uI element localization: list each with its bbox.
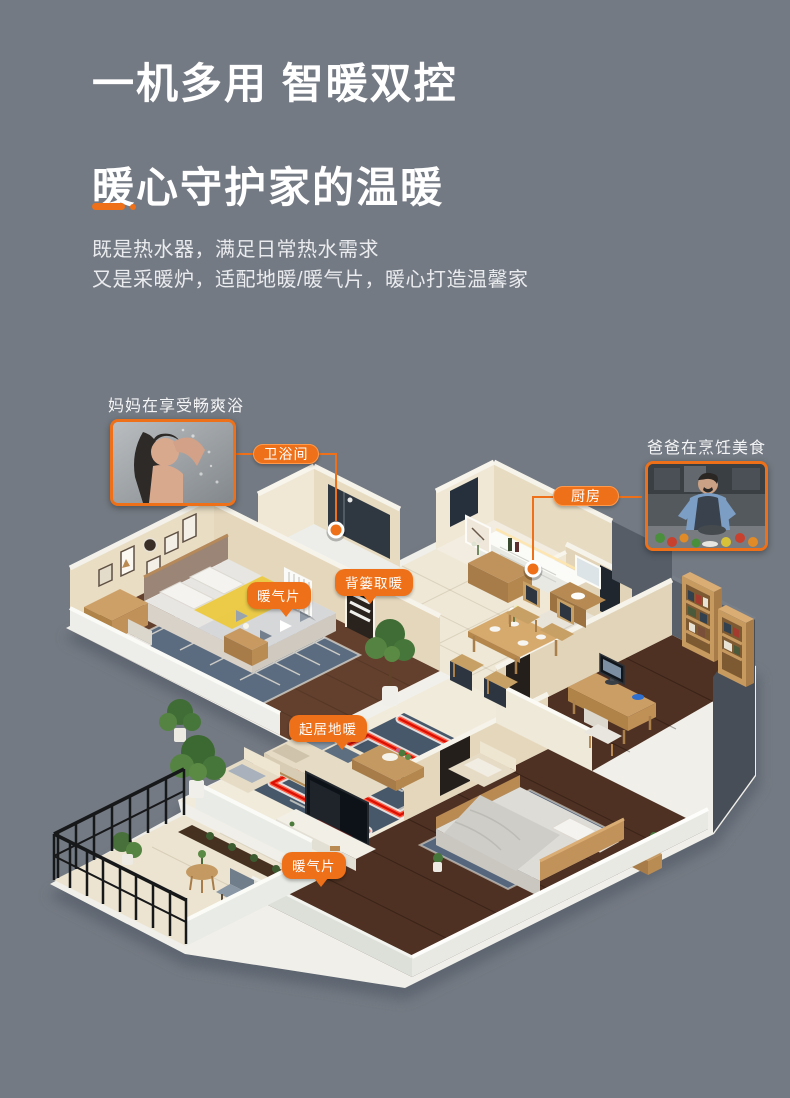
mom-photo-caption: 妈妈在享受畅爽浴 — [108, 392, 244, 416]
promo-page: 一机多用 智暖双控 暖心守护家的温暖 既是热水器，满足日常热水需求 又是采暖炉，… — [0, 0, 790, 1098]
callout-living-floor-heating: 起居地暖 — [289, 715, 367, 742]
callout-radiator-bottom: 暖气片 — [282, 852, 346, 879]
shower-photo — [110, 419, 236, 506]
callout-towel-warmer: 背篓取暖 — [335, 569, 413, 596]
bookshelf-2 — [718, 605, 754, 687]
room-tag-bathroom-label: 卫浴间 — [264, 444, 309, 464]
room-tag-bathroom: 卫浴间 — [253, 444, 319, 464]
callout-radiator-top: 暖气片 — [247, 582, 311, 609]
room-tag-kitchen: 厨房 — [553, 486, 619, 506]
room-tag-kitchen-label: 厨房 — [571, 486, 601, 506]
dad-photo-caption: 爸爸在烹饪美食 — [647, 434, 766, 458]
callout-radiator-top-label: 暖气片 — [257, 589, 301, 604]
callout-living-floor-heating-label: 起居地暖 — [299, 722, 357, 737]
cooking-photo — [645, 461, 768, 551]
callout-towel-warmer-label: 背篓取暖 — [345, 576, 403, 591]
bookshelf — [682, 572, 722, 662]
callout-radiator-bottom-label: 暖气片 — [292, 859, 336, 874]
